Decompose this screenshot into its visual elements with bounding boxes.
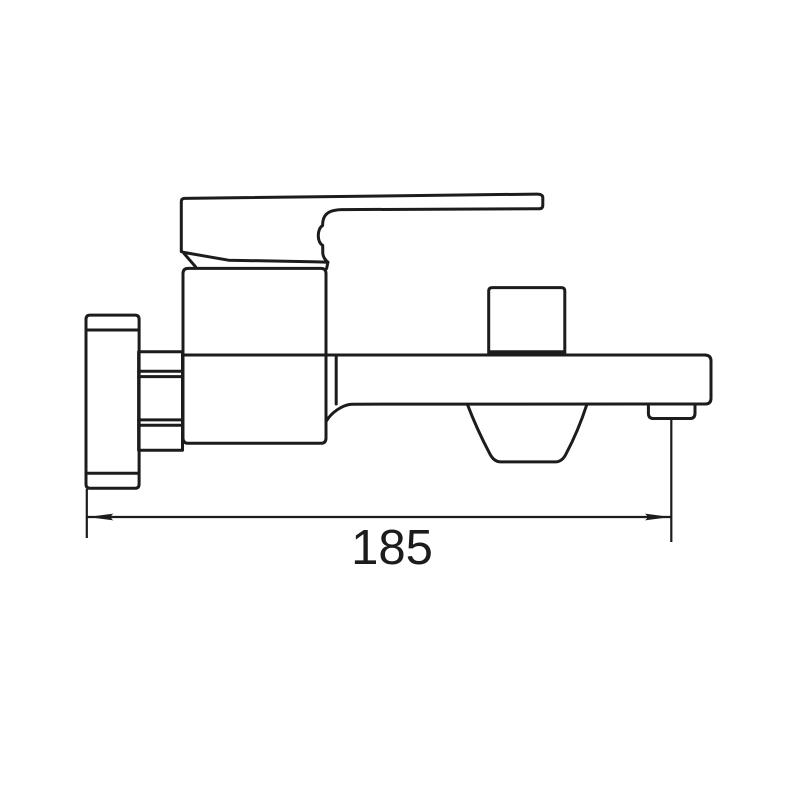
dimension-annotation: 185 <box>87 419 672 575</box>
spout-body-outline-icon <box>326 355 711 421</box>
connector-nut <box>139 352 183 450</box>
aerator-shroud-icon <box>467 404 587 462</box>
dimension-arrow-left-icon <box>88 514 114 521</box>
handle <box>181 194 543 269</box>
connector-nut-ridge-lines <box>139 371 183 425</box>
outlet-nozzle-icon <box>648 404 695 418</box>
wall-flange-outline-icon <box>86 315 139 488</box>
diverter-knob <box>489 288 565 355</box>
handle-lever-outline-icon <box>181 194 543 262</box>
faucet-technical-drawing: 185 <box>0 0 800 800</box>
faucet-outline-group <box>86 194 711 488</box>
handle-skirt-line <box>184 254 195 267</box>
diverter-knob-outline-icon <box>489 288 565 355</box>
technical-drawing-canvas: 185 <box>0 0 800 800</box>
dimension-label: 185 <box>351 521 433 575</box>
handle-foot-joint-line <box>327 262 328 268</box>
spout <box>183 355 711 462</box>
connector-nut-outline-icon <box>139 352 183 450</box>
dimension-arrow-right-icon <box>645 514 671 521</box>
wall-flange <box>86 315 139 488</box>
